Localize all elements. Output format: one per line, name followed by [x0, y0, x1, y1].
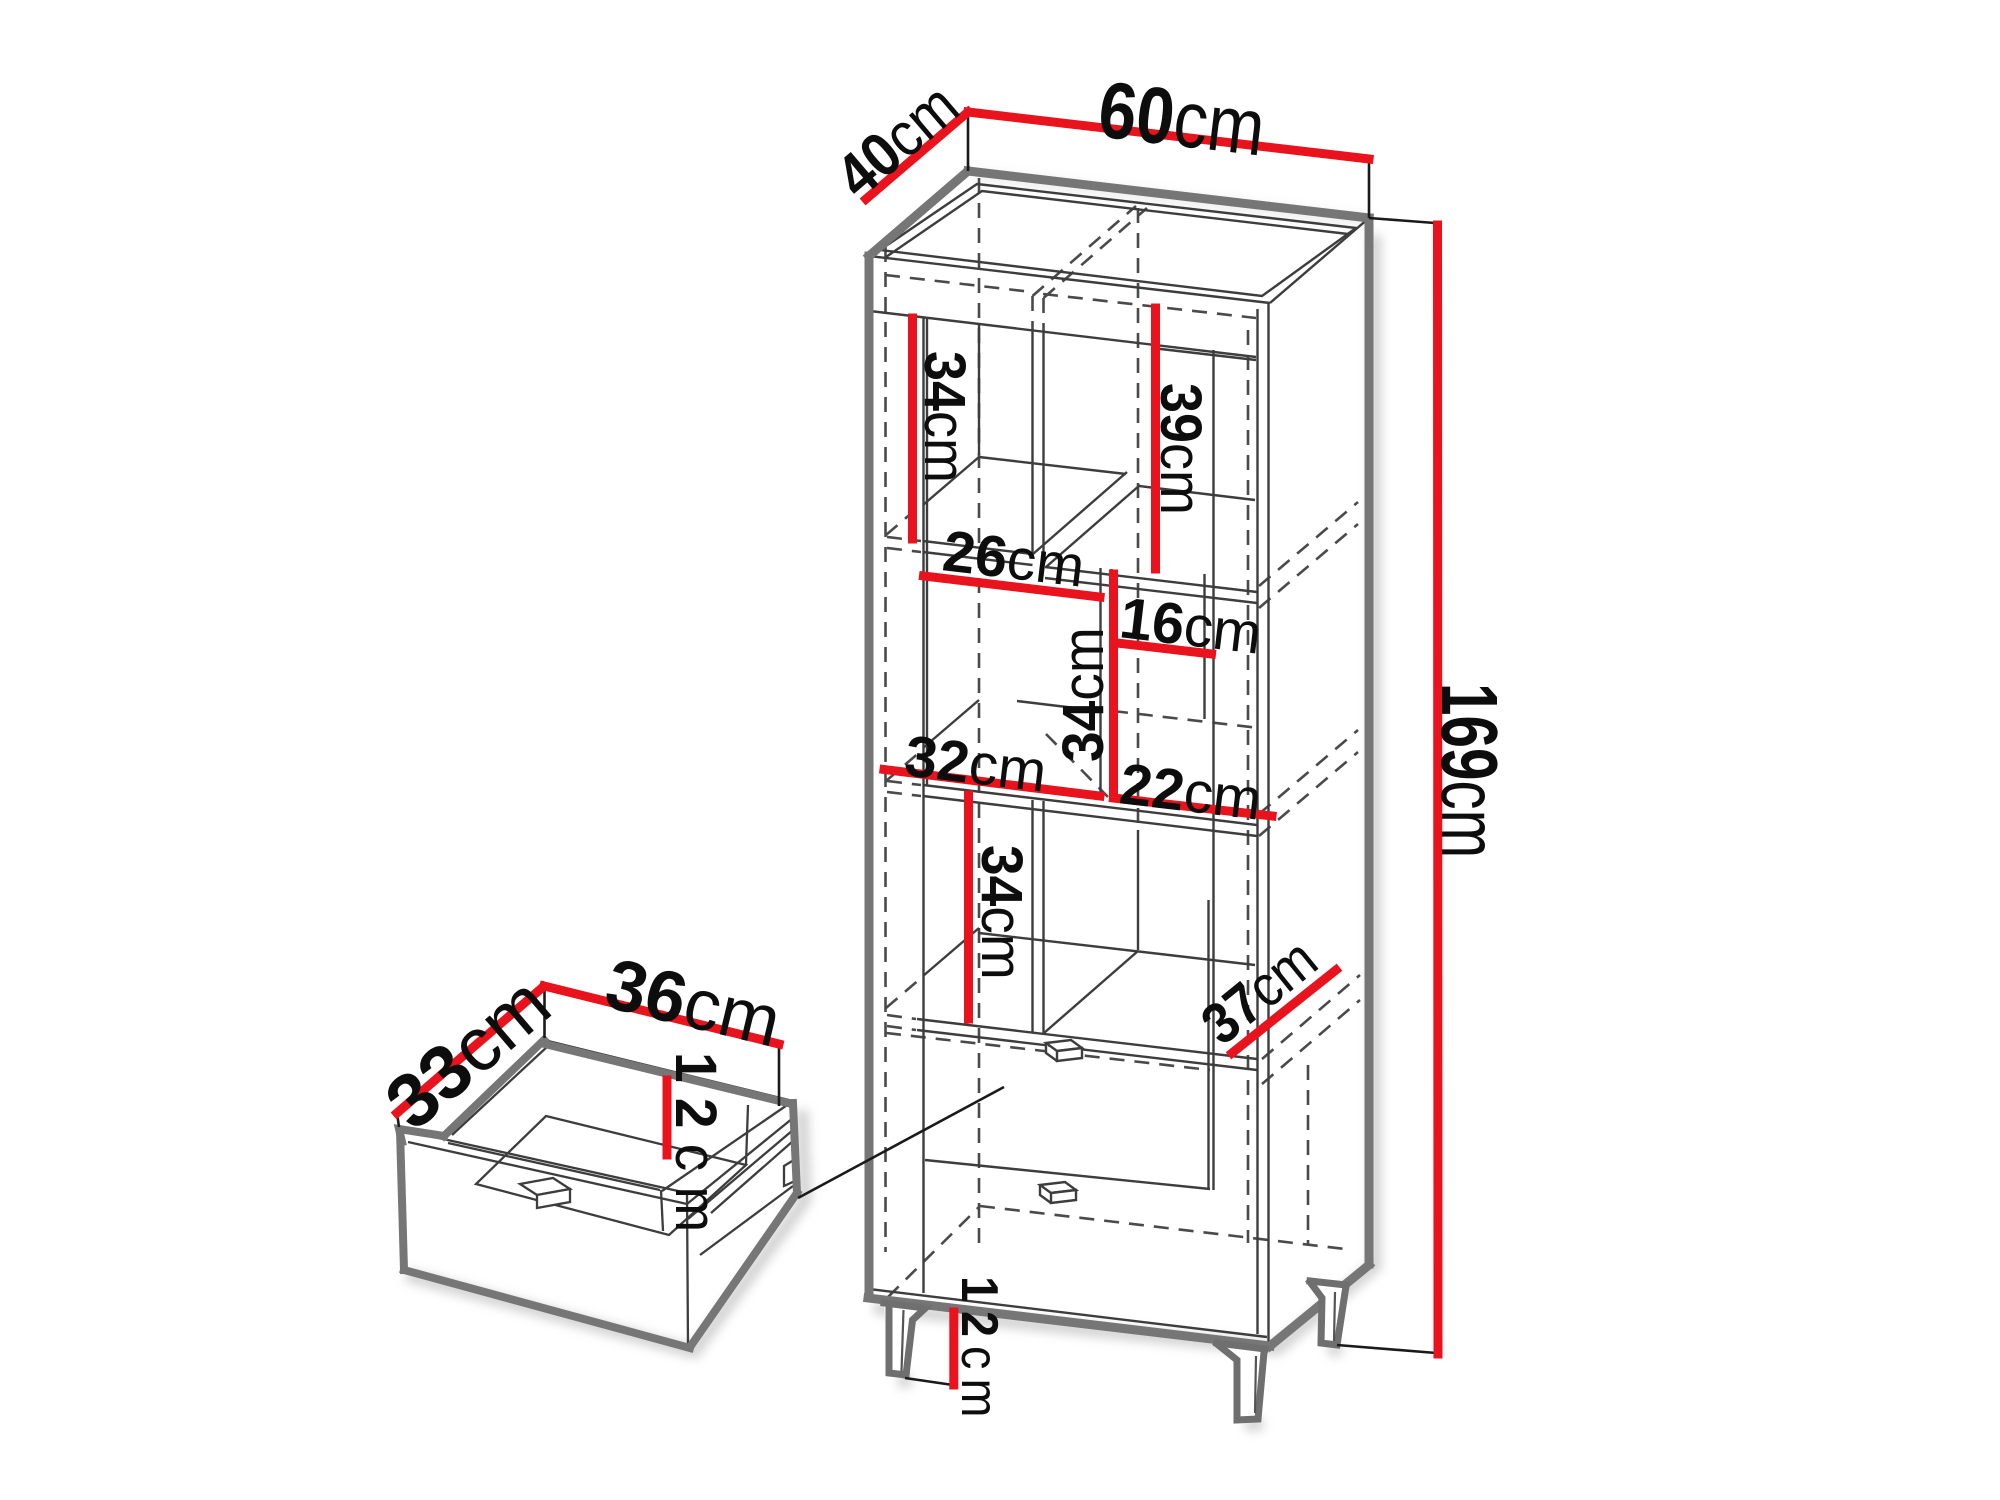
svg-text:169cm: 169cm	[1425, 683, 1514, 858]
svg-text:34cm: 34cm	[970, 845, 1035, 980]
svg-text:12cm: 12cm	[950, 1276, 1008, 1426]
svg-text:34cm: 34cm	[1051, 627, 1116, 762]
svg-text:39cm: 39cm	[1149, 383, 1214, 515]
svg-text:12cm: 12cm	[664, 1052, 729, 1247]
svg-text:34cm: 34cm	[913, 351, 978, 483]
